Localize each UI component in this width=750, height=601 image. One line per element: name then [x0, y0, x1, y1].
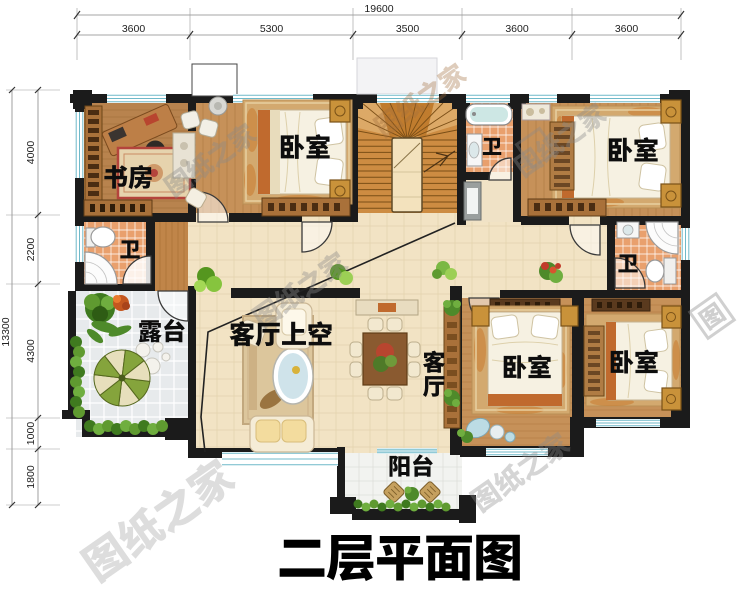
svg-text:4300: 4300 — [25, 339, 37, 363]
svg-text:1800: 1800 — [25, 465, 37, 489]
svg-text:3600: 3600 — [615, 23, 639, 35]
svg-text:3500: 3500 — [396, 23, 420, 35]
svg-text:19600: 19600 — [364, 3, 393, 15]
svg-text:5300: 5300 — [260, 23, 284, 35]
svg-text:4000: 4000 — [25, 141, 37, 165]
svg-text:3600: 3600 — [122, 23, 146, 35]
svg-text:13300: 13300 — [0, 317, 12, 346]
svg-text:1000: 1000 — [25, 422, 37, 446]
svg-text:2200: 2200 — [25, 238, 37, 262]
svg-text:3600: 3600 — [505, 23, 529, 35]
